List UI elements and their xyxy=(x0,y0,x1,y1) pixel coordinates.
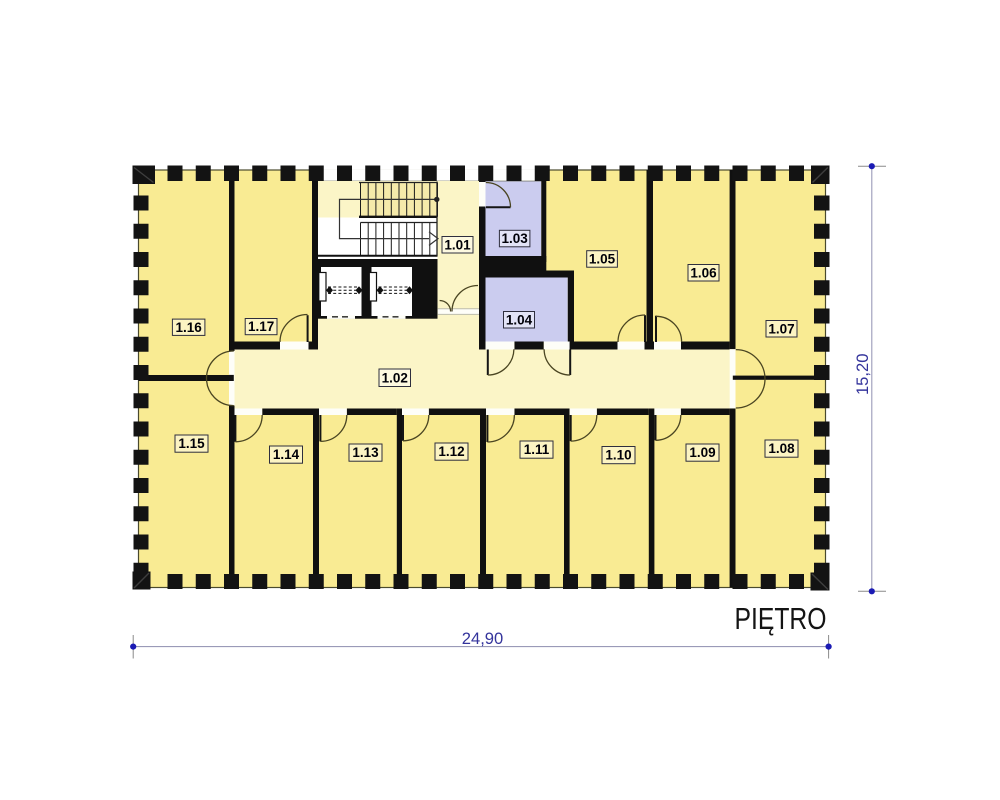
svg-text:PIĘTRO: PIĘTRO xyxy=(735,601,827,636)
svg-text:1.04: 1.04 xyxy=(506,312,533,327)
svg-text:1.08: 1.08 xyxy=(768,441,795,456)
svg-text:1.13: 1.13 xyxy=(352,445,379,460)
svg-text:15,20: 15,20 xyxy=(854,354,872,396)
svg-text:1.05: 1.05 xyxy=(589,252,616,267)
svg-text:1.16: 1.16 xyxy=(176,320,203,335)
svg-text:1.07: 1.07 xyxy=(768,321,794,336)
svg-text:1.06: 1.06 xyxy=(690,265,717,280)
svg-text:1.02: 1.02 xyxy=(382,370,408,385)
svg-text:24,90: 24,90 xyxy=(462,630,504,648)
svg-text:1.09: 1.09 xyxy=(689,445,715,460)
svg-text:1.03: 1.03 xyxy=(502,231,529,246)
svg-text:1.15: 1.15 xyxy=(178,436,205,451)
svg-text:1.11: 1.11 xyxy=(524,442,550,457)
svg-text:1.12: 1.12 xyxy=(438,444,464,459)
svg-text:1.17: 1.17 xyxy=(248,319,274,334)
svg-text:1.14: 1.14 xyxy=(273,447,300,462)
svg-text:1.10: 1.10 xyxy=(605,448,631,463)
svg-text:1.01: 1.01 xyxy=(444,237,471,252)
